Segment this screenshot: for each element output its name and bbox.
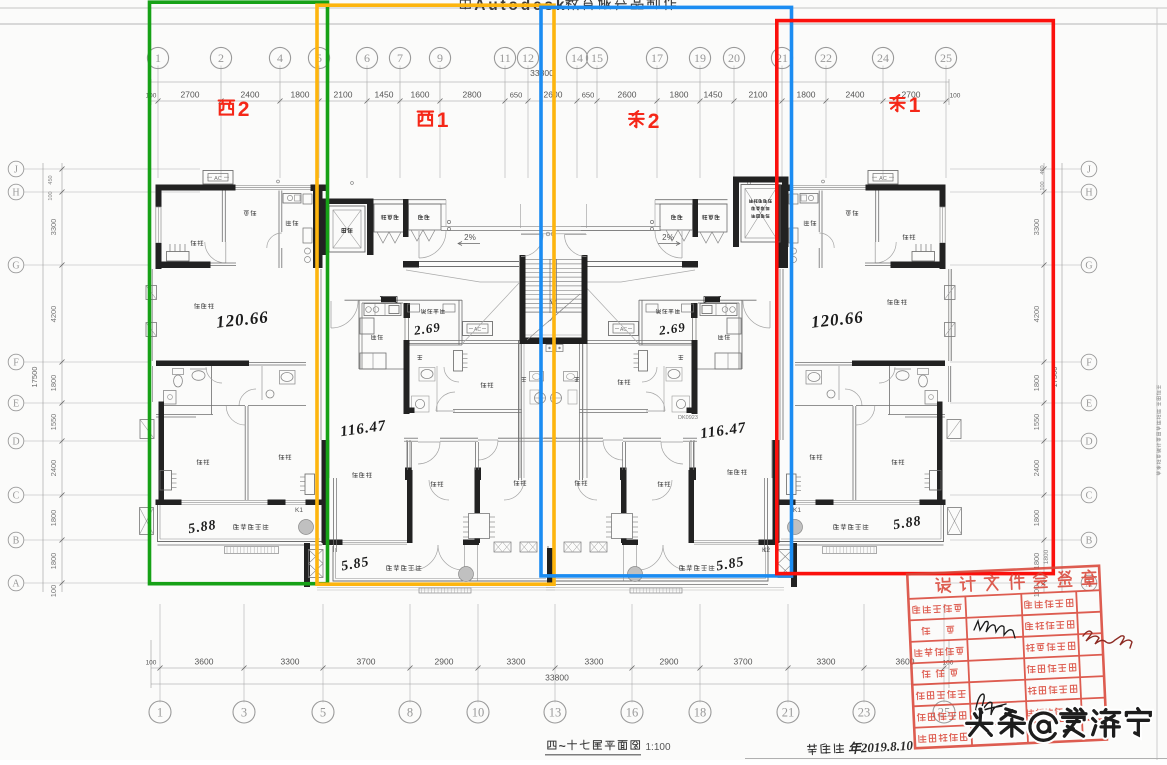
svg-text:100: 100 [48,191,54,200]
svg-text:2400: 2400 [846,90,865,100]
svg-text:1800: 1800 [1043,549,1050,564]
svg-text:16: 16 [626,705,639,719]
svg-text:1800: 1800 [1032,553,1041,570]
svg-text:19: 19 [694,51,706,65]
svg-text:3: 3 [241,705,247,719]
svg-text:K2: K2 [762,547,770,554]
svg-text:3300: 3300 [507,657,526,667]
svg-text:2400: 2400 [49,460,58,477]
svg-text:1:100: 1:100 [645,742,670,753]
svg-text:2400: 2400 [1032,460,1041,477]
svg-text:2100: 2100 [749,90,768,100]
svg-text:1800: 1800 [49,553,58,570]
svg-text:3600: 3600 [195,657,214,667]
svg-text:H: H [12,187,19,198]
svg-text:17500: 17500 [30,367,39,388]
svg-text:4200: 4200 [49,306,58,323]
svg-text:15: 15 [591,51,603,65]
svg-text:7: 7 [397,51,403,65]
svg-text:4200: 4200 [1032,306,1041,323]
svg-text:F: F [13,357,19,368]
svg-text:100: 100 [146,660,157,667]
svg-text:G: G [1085,260,1092,271]
svg-text:650: 650 [510,91,523,100]
svg-text:21: 21 [782,705,795,719]
svg-text:AC: AC [214,176,222,182]
svg-text:17: 17 [651,51,663,65]
svg-text:F: F [1086,357,1092,368]
svg-text:8: 8 [407,705,413,719]
svg-text:33800: 33800 [545,673,569,683]
svg-text:23: 23 [858,705,871,719]
svg-text:450: 450 [48,175,54,184]
svg-text:11: 11 [499,51,511,65]
svg-text:2600: 2600 [618,90,637,100]
svg-text:H: H [1085,187,1092,198]
svg-text:5: 5 [320,705,326,719]
svg-text:1800: 1800 [1032,375,1041,392]
svg-text:1550: 1550 [49,414,58,431]
svg-text:D: D [1085,436,1092,447]
svg-text:24: 24 [877,51,889,65]
svg-text:9: 9 [437,51,443,65]
svg-text:10: 10 [472,705,485,719]
svg-text:4: 4 [277,51,283,65]
svg-text:B: B [1086,535,1093,546]
svg-text:D: D [12,436,19,447]
svg-text:6: 6 [364,51,370,65]
svg-text:1800: 1800 [797,90,816,100]
svg-text:E: E [13,398,19,409]
svg-text:G: G [12,260,19,271]
svg-text:1800: 1800 [49,510,58,527]
svg-text:2800: 2800 [463,90,482,100]
svg-text:3300: 3300 [49,219,58,236]
svg-text:100: 100 [943,660,954,667]
svg-text:18: 18 [694,705,707,719]
svg-text:2900: 2900 [435,657,454,667]
svg-text:1800: 1800 [291,90,310,100]
svg-text:1450: 1450 [704,90,723,100]
svg-text:100: 100 [1040,181,1046,190]
svg-text:1800: 1800 [49,375,58,392]
svg-text:J: J [1087,164,1091,175]
svg-text:3300: 3300 [1032,219,1041,236]
svg-text:1: 1 [437,109,449,132]
svg-text:100: 100 [950,93,961,100]
svg-text:3300: 3300 [281,657,300,667]
svg-text:C: C [1086,490,1093,501]
svg-text:20: 20 [728,51,740,65]
svg-text:2: 2 [238,98,250,121]
svg-text:2100: 2100 [334,90,353,100]
svg-text:2900: 2900 [660,657,679,667]
svg-text:3700: 3700 [357,657,376,667]
svg-text:1600: 1600 [411,90,430,100]
svg-text:1800: 1800 [670,90,689,100]
svg-text:12: 12 [522,51,534,65]
svg-text:1: 1 [909,94,921,117]
svg-text:K1: K1 [295,507,303,514]
svg-text:2%: 2% [464,233,476,242]
svg-text:2700: 2700 [181,90,200,100]
svg-text:13: 13 [549,705,562,719]
svg-text:J: J [14,164,18,175]
svg-text:A: A [12,578,20,589]
svg-text:3300: 3300 [585,657,604,667]
svg-text:~: ~ [559,739,566,753]
svg-text:1: 1 [155,51,161,65]
svg-text:14: 14 [571,51,583,65]
svg-text:AC: AC [879,176,887,182]
svg-text:650: 650 [582,91,595,100]
svg-text:DK0923: DK0923 [678,415,698,421]
svg-text:K1: K1 [793,507,801,514]
svg-text:1800: 1800 [1032,510,1041,527]
svg-text:450: 450 [1040,165,1046,174]
svg-text:1550: 1550 [1032,414,1041,431]
svg-text:3300: 3300 [817,657,836,667]
svg-text:100: 100 [49,585,58,598]
svg-text:E: E [1086,398,1092,409]
svg-text:2: 2 [648,110,660,133]
svg-text:1450: 1450 [375,90,394,100]
svg-text:C: C [13,490,20,501]
svg-text:22: 22 [820,51,832,65]
svg-text:25: 25 [940,51,952,65]
svg-text:1: 1 [157,705,163,719]
svg-text:B: B [13,535,20,546]
svg-text:2: 2 [218,51,224,65]
svg-text:3700: 3700 [734,657,753,667]
svg-text:2%: 2% [662,233,674,242]
